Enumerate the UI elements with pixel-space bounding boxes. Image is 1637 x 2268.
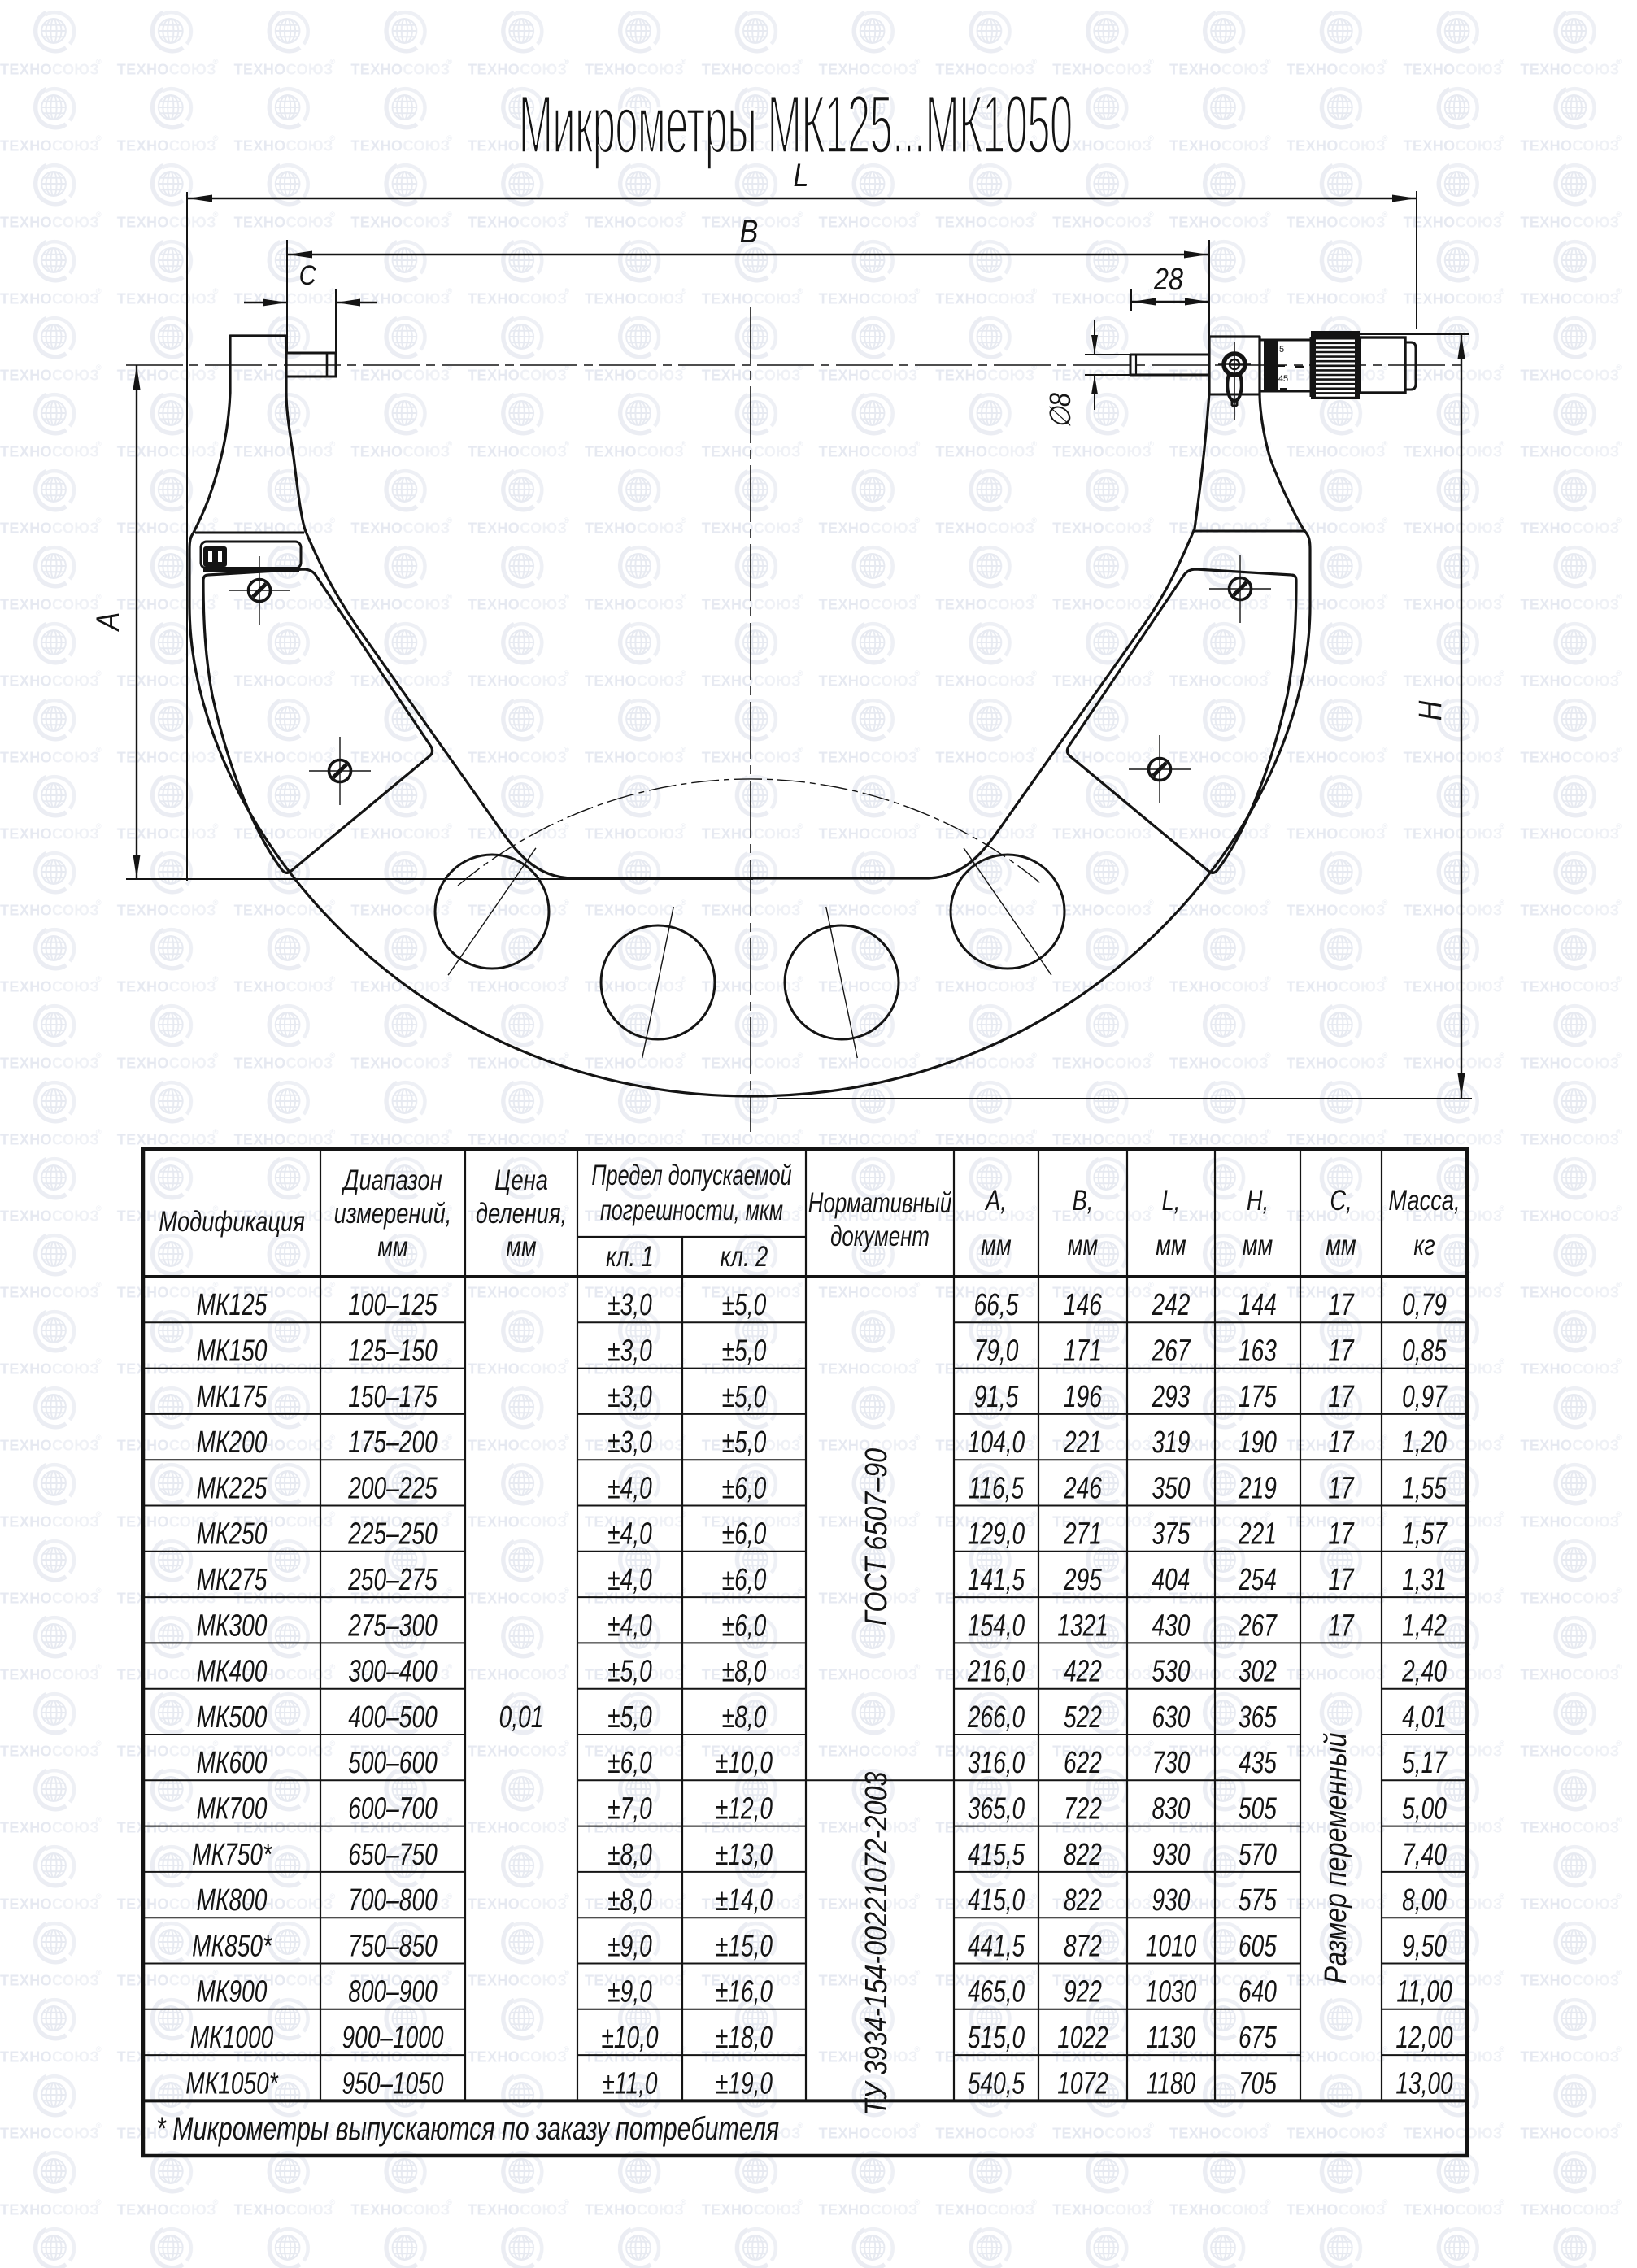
svg-text:275–300: 275–300 [347, 1608, 438, 1643]
svg-text:±5,0: ±5,0 [607, 1655, 652, 1689]
svg-text:деления,: деления, [476, 1198, 567, 1230]
svg-text:125–150: 125–150 [348, 1334, 438, 1368]
svg-text:2,40: 2,40 [1401, 1655, 1447, 1689]
svg-text:МК750*: МК750* [192, 1838, 272, 1872]
svg-text:±8,0: ±8,0 [722, 1655, 767, 1689]
svg-text:мм: мм [377, 1231, 407, 1263]
svg-text:МК275: МК275 [197, 1563, 268, 1597]
svg-text:104,0: 104,0 [968, 1426, 1025, 1460]
svg-text:8,00: 8,00 [1402, 1883, 1447, 1918]
svg-text:МК900: МК900 [197, 1975, 268, 2009]
svg-text:Цена: Цена [494, 1164, 548, 1196]
svg-text:500–600: 500–600 [348, 1746, 438, 1780]
svg-text:L: L [794, 156, 809, 193]
svg-text:267: 267 [1152, 1334, 1191, 1368]
svg-text:±6,0: ±6,0 [722, 1563, 767, 1597]
svg-text:±5,0: ±5,0 [722, 1380, 767, 1414]
svg-text:±3,0: ±3,0 [607, 1288, 652, 1322]
svg-text:640: 640 [1239, 1975, 1277, 2009]
svg-text:7,40: 7,40 [1402, 1838, 1447, 1872]
svg-text:375: 375 [1152, 1517, 1191, 1552]
svg-text:11,00: 11,00 [1396, 1975, 1452, 2009]
svg-text:1180: 1180 [1147, 2066, 1196, 2100]
svg-text:±19,0: ±19,0 [716, 2066, 773, 2100]
svg-text:МК850*: МК850* [192, 1929, 272, 1963]
svg-text:±4,0: ±4,0 [607, 1517, 652, 1552]
svg-text:830: 830 [1152, 1791, 1191, 1826]
svg-text:1010: 1010 [1146, 1929, 1197, 1963]
svg-text:17: 17 [1328, 1288, 1354, 1322]
svg-text:МК1050*: МК1050* [185, 2066, 278, 2100]
svg-text:C: C [299, 259, 316, 291]
svg-text:±9,0: ±9,0 [607, 1929, 652, 1963]
svg-text:404: 404 [1152, 1563, 1191, 1597]
svg-text:мм: мм [1326, 1230, 1356, 1261]
svg-text:465,0: 465,0 [968, 1975, 1025, 2009]
svg-text:700–800: 700–800 [348, 1883, 438, 1918]
svg-text:246: 246 [1063, 1471, 1102, 1505]
svg-text:0,97: 0,97 [1402, 1380, 1448, 1414]
svg-text:116,5: 116,5 [969, 1471, 1025, 1505]
svg-text:575: 575 [1239, 1883, 1277, 1918]
svg-text:±15,0: ±15,0 [716, 1929, 773, 1963]
svg-text:171: 171 [1064, 1334, 1102, 1368]
svg-text:522: 522 [1064, 1700, 1102, 1735]
svg-text:415,0: 415,0 [968, 1883, 1025, 1918]
svg-text:28: 28 [1153, 263, 1183, 297]
svg-text:±12,0: ±12,0 [716, 1791, 773, 1826]
svg-text:B: B [740, 212, 759, 249]
svg-text:МК225: МК225 [197, 1471, 268, 1505]
svg-text:±6,0: ±6,0 [722, 1608, 767, 1643]
svg-text:±6,0: ±6,0 [607, 1746, 652, 1780]
svg-text:0,85: 0,85 [1402, 1334, 1447, 1368]
svg-text:1,57: 1,57 [1402, 1517, 1448, 1552]
svg-text:17: 17 [1328, 1563, 1354, 1597]
svg-text:650–750: 650–750 [348, 1838, 438, 1872]
svg-text:мм: мм [1243, 1230, 1273, 1261]
svg-text:144: 144 [1239, 1288, 1277, 1322]
svg-text:±3,0: ±3,0 [607, 1380, 652, 1414]
svg-text:С,: С, [1330, 1185, 1352, 1217]
svg-text:295: 295 [1063, 1563, 1102, 1597]
svg-text:ТУ 3934-154-00221072-2003: ТУ 3934-154-00221072-2003 [860, 1771, 894, 2115]
svg-text:17: 17 [1328, 1426, 1354, 1460]
svg-text:МК250: МК250 [197, 1517, 268, 1552]
svg-text:мм: мм [981, 1230, 1011, 1261]
svg-text:A: A [89, 612, 125, 633]
svg-text:930: 930 [1152, 1838, 1191, 1872]
svg-text:675: 675 [1239, 2021, 1277, 2055]
svg-text:4,01: 4,01 [1402, 1700, 1447, 1735]
svg-text:±18,0: ±18,0 [716, 2021, 773, 2055]
svg-text:266,0: 266,0 [967, 1700, 1025, 1735]
svg-text:200–225: 200–225 [347, 1471, 438, 1505]
svg-text:±14,0: ±14,0 [716, 1883, 773, 1918]
svg-text:17: 17 [1328, 1380, 1354, 1414]
svg-text:МК150: МК150 [197, 1334, 268, 1368]
svg-text:17: 17 [1328, 1334, 1354, 1368]
svg-text:±7,0: ±7,0 [607, 1791, 652, 1826]
svg-text:365,0: 365,0 [968, 1791, 1025, 1826]
svg-text:0,01: 0,01 [499, 1700, 544, 1735]
svg-text:1072: 1072 [1057, 2066, 1108, 2100]
svg-text:319: 319 [1152, 1426, 1191, 1460]
svg-text:±4,0: ±4,0 [607, 1471, 652, 1505]
svg-text:900–1000: 900–1000 [342, 2021, 443, 2055]
svg-text:документ: документ [830, 1220, 930, 1252]
svg-text:1,31: 1,31 [1402, 1563, 1447, 1597]
svg-text:300–400: 300–400 [348, 1655, 438, 1689]
svg-text:±5,0: ±5,0 [607, 1700, 652, 1735]
svg-text:163: 163 [1239, 1334, 1277, 1368]
svg-text:91,5: 91,5 [974, 1380, 1019, 1414]
svg-text:кл. 2: кл. 2 [721, 1241, 768, 1273]
svg-text:±3,0: ±3,0 [607, 1334, 652, 1368]
svg-text:302: 302 [1239, 1655, 1277, 1689]
svg-text:Размер переменный: Размер переменный [1319, 1732, 1353, 1983]
svg-text:Предел допускаемой: Предел допускаемой [591, 1160, 791, 1191]
svg-text:Нормативный: Нормативный [808, 1186, 951, 1219]
svg-text:350: 350 [1152, 1471, 1191, 1505]
svg-text:515,0: 515,0 [968, 2021, 1025, 2055]
svg-text:435: 435 [1239, 1746, 1277, 1780]
svg-text:540,5: 540,5 [968, 2066, 1025, 2100]
svg-text:0,79: 0,79 [1402, 1288, 1447, 1322]
svg-text:605: 605 [1239, 1929, 1277, 1963]
svg-text:1,20: 1,20 [1402, 1426, 1447, 1460]
svg-text:722: 722 [1064, 1791, 1102, 1826]
svg-text:±5,0: ±5,0 [722, 1334, 767, 1368]
svg-text:800–900: 800–900 [348, 1975, 438, 2009]
svg-text:1,55: 1,55 [1402, 1471, 1447, 1505]
svg-text:МК300: МК300 [197, 1608, 268, 1643]
svg-text:±5,0: ±5,0 [722, 1288, 767, 1322]
svg-text:570: 570 [1239, 1838, 1277, 1872]
svg-text:±6,0: ±6,0 [722, 1471, 767, 1505]
svg-text:мм: мм [506, 1231, 536, 1263]
svg-text:Масса,: Масса, [1388, 1185, 1460, 1217]
svg-text:316,0: 316,0 [968, 1746, 1025, 1780]
svg-text:±4,0: ±4,0 [607, 1563, 652, 1597]
svg-text:250–275: 250–275 [347, 1563, 438, 1597]
svg-text:415,5: 415,5 [968, 1838, 1025, 1872]
svg-text:190: 190 [1239, 1426, 1277, 1460]
svg-text:5,17: 5,17 [1402, 1746, 1448, 1780]
svg-text:±3,0: ±3,0 [607, 1426, 652, 1460]
svg-text:МК700: МК700 [197, 1791, 268, 1826]
svg-text:погрешности, мкм: погрешности, мкм [600, 1195, 783, 1226]
svg-text:МК125: МК125 [197, 1288, 268, 1322]
svg-text:216,0: 216,0 [967, 1655, 1025, 1689]
svg-text:750–850: 750–850 [348, 1929, 438, 1963]
svg-text:430: 430 [1152, 1608, 1191, 1643]
svg-text:225–250: 225–250 [347, 1517, 438, 1552]
svg-text:221: 221 [1238, 1517, 1277, 1552]
svg-text:* Микрометры выпускаются по за: * Микрометры выпускаются по заказу потре… [156, 2110, 779, 2147]
svg-text:±10,0: ±10,0 [601, 2021, 658, 2055]
svg-text:измерений,: измерений, [334, 1198, 452, 1230]
svg-text:Н,: Н, [1247, 1185, 1269, 1217]
svg-text:5,00: 5,00 [1402, 1791, 1447, 1826]
svg-text:кл. 1: кл. 1 [606, 1241, 654, 1273]
svg-text:МК200: МК200 [197, 1426, 268, 1460]
svg-text:МК800: МК800 [197, 1883, 268, 1918]
svg-text:ГОСТ 6507–90: ГОСТ 6507–90 [860, 1448, 894, 1626]
svg-text:254: 254 [1238, 1563, 1277, 1597]
svg-text:730: 730 [1152, 1746, 1191, 1780]
svg-text:1,42: 1,42 [1402, 1608, 1447, 1643]
svg-text:141,5: 141,5 [968, 1563, 1025, 1597]
svg-text:5: 5 [1279, 345, 1284, 355]
svg-text:МК1000: МК1000 [190, 2021, 274, 2055]
svg-text:±9,0: ±9,0 [607, 1975, 652, 2009]
svg-text:1321: 1321 [1057, 1608, 1108, 1643]
svg-text:922: 922 [1064, 1975, 1102, 2009]
svg-text:мм: мм [1156, 1230, 1186, 1261]
svg-text:129,0: 129,0 [968, 1517, 1025, 1552]
svg-text:17: 17 [1328, 1471, 1354, 1505]
svg-text:L,: L, [1162, 1185, 1181, 1217]
svg-text:1022: 1022 [1057, 2021, 1108, 2055]
svg-text:822: 822 [1064, 1838, 1102, 1872]
svg-text:1030: 1030 [1146, 1975, 1197, 2009]
svg-text:79,0: 79,0 [974, 1334, 1019, 1368]
svg-text:±11,0: ±11,0 [602, 2066, 657, 2100]
svg-text:441,5: 441,5 [968, 1929, 1025, 1963]
svg-text:150–175: 150–175 [348, 1380, 438, 1414]
svg-text:кг: кг [1413, 1230, 1435, 1261]
svg-text:267: 267 [1238, 1608, 1278, 1643]
svg-text:400–500: 400–500 [348, 1700, 438, 1735]
svg-text:±16,0: ±16,0 [716, 1975, 773, 2009]
svg-text:±6,0: ±6,0 [722, 1517, 767, 1552]
svg-text:±8,0: ±8,0 [607, 1838, 652, 1872]
svg-text:365: 365 [1239, 1700, 1277, 1735]
svg-text:мм: мм [1068, 1230, 1098, 1261]
svg-text:872: 872 [1064, 1929, 1102, 1963]
svg-text:МК400: МК400 [197, 1655, 268, 1689]
svg-text:Диапазон: Диапазон [342, 1164, 442, 1196]
svg-text:175: 175 [1239, 1380, 1277, 1414]
svg-text:H: H [1411, 701, 1448, 721]
svg-text:±8,0: ±8,0 [607, 1883, 652, 1918]
svg-text:271: 271 [1063, 1517, 1102, 1552]
svg-text:705: 705 [1239, 2066, 1277, 2100]
svg-text:950–1050: 950–1050 [342, 2066, 443, 2100]
svg-text:МК600: МК600 [197, 1746, 268, 1780]
svg-text:530: 530 [1152, 1655, 1191, 1689]
svg-text:175–200: 175–200 [348, 1426, 438, 1460]
svg-text:Модификация: Модификация [159, 1206, 305, 1238]
svg-text:293: 293 [1152, 1380, 1191, 1414]
svg-text:154,0: 154,0 [968, 1608, 1025, 1643]
svg-text:219: 219 [1238, 1471, 1277, 1505]
svg-text:505: 505 [1239, 1791, 1277, 1826]
svg-text:1130: 1130 [1147, 2021, 1196, 2055]
svg-text:А,: А, [984, 1185, 1007, 1217]
svg-text:822: 822 [1064, 1883, 1102, 1918]
svg-text:630: 630 [1152, 1700, 1191, 1735]
svg-text:17: 17 [1328, 1608, 1354, 1643]
svg-text:146: 146 [1064, 1288, 1102, 1322]
svg-text:±10,0: ±10,0 [716, 1746, 773, 1780]
svg-text:422: 422 [1064, 1655, 1102, 1689]
svg-text:221: 221 [1063, 1426, 1102, 1460]
svg-text:±4,0: ±4,0 [607, 1608, 652, 1643]
svg-text:В,: В, [1073, 1185, 1094, 1217]
svg-text:МК500: МК500 [197, 1700, 268, 1735]
svg-text:45: 45 [1278, 374, 1288, 384]
svg-text:930: 930 [1152, 1883, 1191, 1918]
svg-text:66,5: 66,5 [974, 1288, 1019, 1322]
svg-text:242: 242 [1152, 1288, 1191, 1322]
svg-text:17: 17 [1328, 1517, 1354, 1552]
svg-text:МК175: МК175 [197, 1380, 268, 1414]
svg-text:622: 622 [1064, 1746, 1102, 1780]
svg-text:±5,0: ±5,0 [722, 1426, 767, 1460]
svg-text:196: 196 [1064, 1380, 1102, 1414]
svg-text:±13,0: ±13,0 [716, 1838, 773, 1872]
svg-text:±8,0: ±8,0 [722, 1700, 767, 1735]
svg-text:100–125: 100–125 [348, 1288, 438, 1322]
svg-text:∅8: ∅8 [1045, 393, 1078, 429]
svg-text:9,50: 9,50 [1402, 1929, 1447, 1963]
svg-text:12,00: 12,00 [1395, 2021, 1453, 2055]
svg-text:600–700: 600–700 [348, 1791, 438, 1826]
svg-text:13,00: 13,00 [1395, 2066, 1453, 2100]
